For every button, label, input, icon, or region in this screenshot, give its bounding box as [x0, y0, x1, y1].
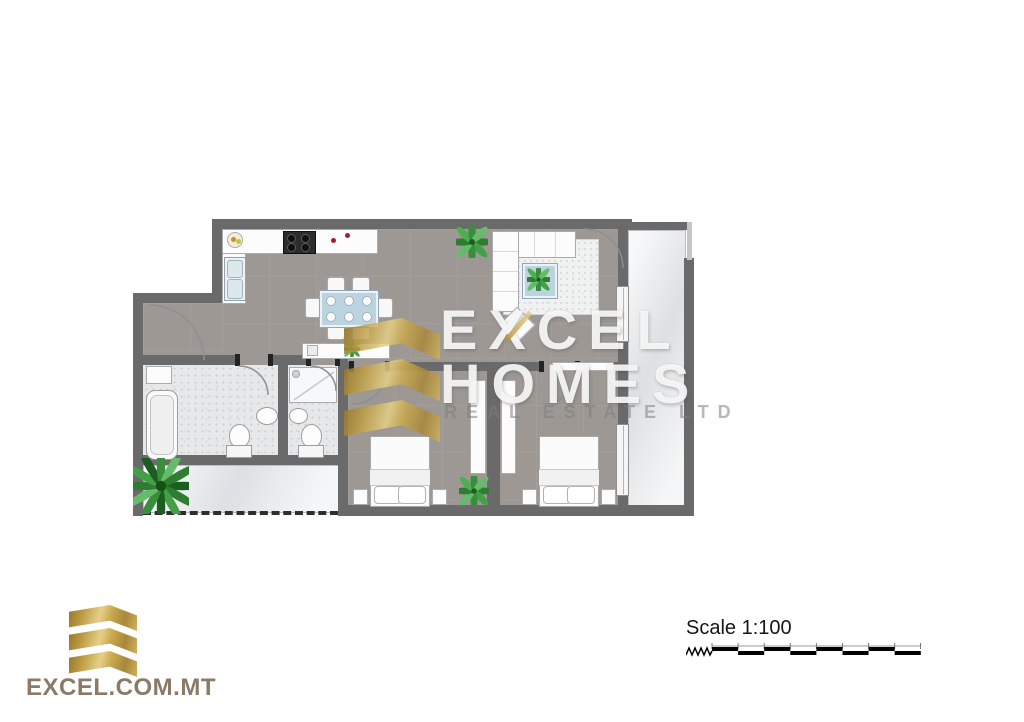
bedroom1-door-opening: [353, 362, 386, 371]
countertop-decor-red: [345, 233, 350, 238]
bedroom2-shelf: [552, 362, 614, 371]
stove-hob-icon: [283, 231, 316, 254]
sink-basin: [227, 279, 243, 299]
scale-label: Scale 1:100: [686, 617, 792, 640]
bathroom-door-opening: [239, 355, 269, 365]
living-room-balcony-window: [616, 286, 629, 342]
bathtub: [146, 390, 178, 460]
bedroom2-bed: [539, 436, 599, 507]
balcony-top-wall: [628, 222, 690, 230]
bathrooms-divider-wall: [278, 365, 288, 455]
top-wall: [212, 219, 632, 229]
countertop-decor-red: [331, 238, 336, 243]
floorplan-page: EXCEL HOMES REAL ESTATE LTD EXCEL.COM.MT…: [0, 0, 1024, 722]
nightstand: [353, 489, 368, 505]
footer-brand-block: EXCEL.COM.MT: [0, 595, 260, 715]
dining-chair: [377, 298, 393, 318]
bathroom-shelf: [146, 366, 172, 384]
balcony-floor: [628, 230, 686, 507]
toilet-icon: [226, 424, 252, 458]
balcony-right-wall: [684, 258, 694, 516]
door-frame-stub: [539, 361, 544, 372]
console-decor-box: [307, 345, 318, 356]
door-frame-stub: [268, 354, 273, 366]
dining-chair: [305, 298, 321, 318]
bedroom-plant-icon: [459, 476, 489, 506]
console-plant-icon: [344, 341, 360, 357]
nightstand: [522, 489, 537, 505]
bedroom1-left-wall: [338, 355, 348, 505]
door-frame-stub: [349, 361, 354, 372]
dining-table: [320, 291, 378, 327]
sink-basin: [227, 260, 243, 278]
bedroom2-wardrobe: [501, 380, 516, 474]
nightstand: [432, 489, 447, 505]
toilet-icon: [298, 424, 324, 458]
door-frame-stub: [385, 361, 390, 372]
kitchen-sink: [224, 257, 246, 301]
balcony-railing: [687, 222, 692, 260]
footer-gold-logo-icon: [69, 605, 137, 677]
coffee-table-plant-icon: [527, 268, 550, 291]
bedroom2-balcony-window: [616, 424, 629, 496]
scale-block: Scale 1:100: [680, 615, 940, 665]
terrace-palm-icon: [133, 458, 189, 514]
door-frame-stub: [235, 354, 240, 366]
scale-bar: [686, 643, 921, 659]
bedroom1-wardrobe: [470, 380, 486, 474]
washbasin-icon: [289, 408, 308, 424]
sofa-vertical-section: [492, 231, 519, 312]
kitchen-left-wall: [212, 219, 222, 303]
shower-enclosure: [289, 367, 337, 403]
fruit-bowl-icon: [227, 232, 243, 248]
bedroom1-bed: [370, 436, 430, 507]
entrance-step-wall: [133, 293, 222, 303]
footer-website-text: EXCEL.COM.MT: [26, 674, 216, 702]
washbasin-icon: [256, 407, 278, 425]
nightstand: [601, 489, 616, 505]
living-room-plant-icon: [456, 226, 488, 258]
